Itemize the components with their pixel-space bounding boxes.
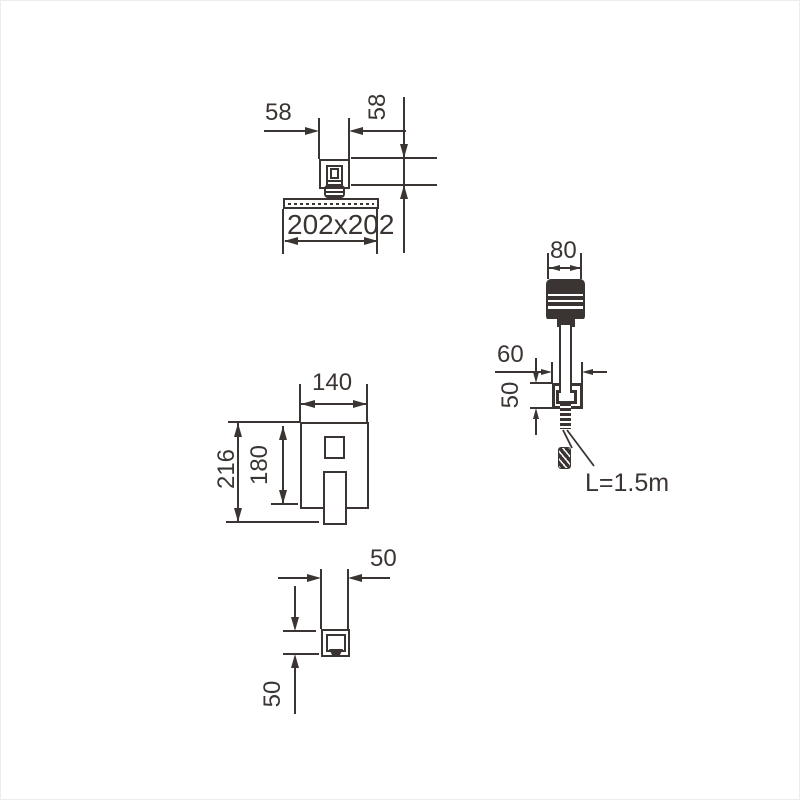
arrowhead-left — [348, 574, 362, 582]
arrowhead-up — [234, 423, 242, 437]
extension-line — [351, 157, 437, 159]
nozzle-dotted-line — [288, 203, 374, 205]
arrowhead-right — [307, 574, 321, 582]
extension-line — [283, 630, 316, 632]
extension-line — [282, 209, 284, 254]
hose-leader-lines — [1, 1, 800, 800]
dimension-line — [593, 371, 607, 373]
dimension-line — [535, 419, 537, 435]
flexible-hose-stub — [558, 447, 571, 469]
head-groove — [548, 300, 583, 302]
extension-line — [581, 362, 583, 383]
arrowhead-right — [305, 127, 319, 135]
extension-line — [551, 362, 553, 383]
arrowhead-down — [279, 490, 287, 504]
arrowhead-down — [400, 144, 408, 158]
dim-label-face-size: 202x202 — [287, 211, 394, 239]
extension-line — [530, 407, 553, 409]
dimension-line — [278, 577, 307, 579]
arrowhead-up — [279, 426, 287, 440]
dim-label-plate-height: 180 — [248, 437, 274, 493]
hose-length-label: L=1.5m — [585, 471, 669, 496]
arrowhead-right — [364, 237, 378, 245]
dim-label-head-width: 80 — [550, 239, 577, 263]
threaded-connector — [560, 403, 571, 429]
arrowhead-right — [570, 265, 581, 271]
dim-label-spout-height: 50 — [261, 666, 287, 722]
extension-line — [348, 118, 350, 159]
arrowhead-up — [533, 408, 539, 419]
arm-fitting-slot — [330, 168, 339, 179]
head-groove — [548, 294, 583, 296]
hand-shower-handle-tube — [559, 325, 572, 393]
arm-fitting-divider — [327, 180, 342, 182]
arrowhead-left — [284, 237, 298, 245]
head-notch — [574, 319, 584, 323]
dimension-line — [294, 586, 296, 617]
dim-label-spout-width: 50 — [370, 547, 397, 571]
dim-label-total-height: 216 — [215, 441, 241, 497]
arrowhead-up — [400, 185, 408, 199]
dim-label-bracket-width: 60 — [497, 343, 524, 367]
extension-line — [347, 569, 349, 629]
technical-drawing-canvas: 58 58 202x202 140 — [0, 0, 800, 800]
diverter-button — [324, 436, 345, 459]
ball-joint-ridge — [326, 193, 343, 195]
arrowhead-down — [291, 617, 299, 631]
arrowhead-left — [301, 400, 315, 408]
mixer-handle — [323, 471, 347, 525]
arrowhead-left — [349, 127, 363, 135]
arrowhead-up — [291, 654, 299, 668]
arrowhead-down — [234, 508, 242, 522]
extension-line — [318, 118, 320, 159]
extension-line — [283, 653, 319, 655]
dimension-line — [535, 358, 537, 372]
extension-line — [530, 382, 553, 384]
dim-label-arm-width: 58 — [265, 101, 292, 125]
arrowhead-left — [582, 369, 593, 375]
extension-line — [351, 184, 437, 186]
arrowhead-left — [549, 265, 560, 271]
arrowhead-right — [353, 400, 367, 408]
dim-label-bracket-height: 50 — [499, 367, 525, 423]
dimension-line — [362, 577, 390, 579]
dimension-line — [363, 130, 406, 132]
extension-line — [271, 503, 298, 505]
dim-label-plate-width: 140 — [312, 371, 352, 395]
dimension-line — [294, 668, 296, 714]
head-groove — [548, 306, 583, 309]
ball-joint — [324, 185, 345, 198]
dim-label-arm-height: 58 — [366, 85, 392, 129]
head-notch — [547, 319, 557, 323]
extension-line — [320, 569, 322, 629]
extension-line — [226, 521, 319, 523]
ball-joint-ridge — [326, 189, 343, 191]
dimension-line — [264, 130, 305, 132]
dimension-line — [403, 97, 405, 253]
